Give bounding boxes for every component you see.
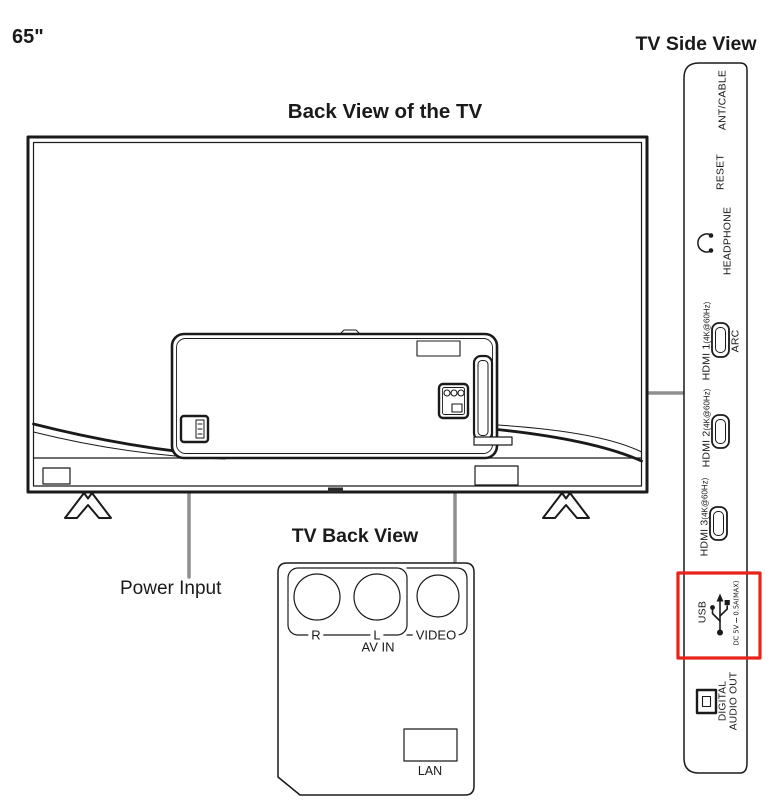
- digital-audio-out-label: DIGITAL AUDIO OUT: [718, 672, 739, 730]
- usb-spec-label: DC 5V ⎓ 0.5A(MAX): [733, 581, 740, 646]
- audio-r-label: R: [308, 628, 323, 643]
- ant-cable-label: ANT/CABLE: [717, 70, 728, 130]
- usb-label: USB: [697, 601, 708, 623]
- hdmi3-label: HDMI 3(4K@60Hz): [699, 478, 710, 557]
- lan-label: LAN: [418, 764, 442, 778]
- video-label: VIDEO: [413, 628, 459, 643]
- av-connector-block: [439, 384, 468, 418]
- hdmi1-arc-label: ARC: [730, 330, 741, 353]
- side-view-title: TV Side View: [635, 33, 756, 56]
- hdmi2-label: HDMI 2(4K@60Hz): [701, 389, 712, 468]
- tv-stand-left: [65, 493, 111, 518]
- power-input-port: [181, 416, 208, 442]
- headphone-label: HEADPHONE: [722, 207, 733, 275]
- manual-diagram-page: 65" TV Side View Back View of the TV TV …: [0, 0, 783, 801]
- reset-label: RESET: [715, 154, 726, 190]
- power-input-label: Power Input: [120, 578, 221, 600]
- back-view-title: Back View of the TV: [288, 100, 482, 124]
- av-inset-panel: [278, 563, 474, 795]
- av-in-label: AV IN: [362, 640, 395, 655]
- hdmi1-label: HDMI 1(4K@60Hz): [701, 302, 712, 381]
- tv-stand-right: [543, 493, 589, 518]
- inset-view-title: TV Back View: [292, 525, 418, 548]
- screen-size-label: 65": [12, 26, 44, 49]
